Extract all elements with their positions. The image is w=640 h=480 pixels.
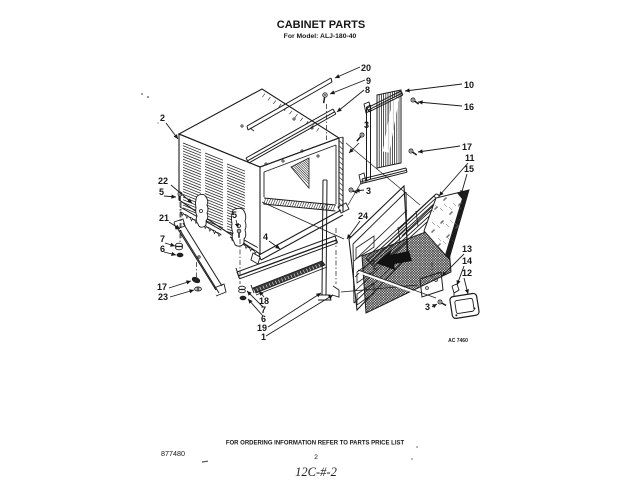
svg-text:15: 15 bbox=[464, 164, 474, 174]
svg-text:13: 13 bbox=[462, 244, 472, 254]
svg-text:2: 2 bbox=[314, 454, 318, 461]
svg-text:17: 17 bbox=[157, 282, 167, 292]
svg-text:5: 5 bbox=[232, 210, 237, 220]
svg-text:12: 12 bbox=[462, 268, 472, 278]
svg-text:2: 2 bbox=[160, 113, 165, 123]
svg-text:AC 7460: AC 7460 bbox=[448, 338, 468, 344]
svg-text:3: 3 bbox=[366, 186, 371, 196]
svg-text:877480: 877480 bbox=[161, 449, 185, 458]
svg-text:10: 10 bbox=[464, 80, 474, 90]
svg-text:CABINET PARTS: CABINET PARTS bbox=[277, 19, 365, 31]
svg-text:3: 3 bbox=[364, 120, 369, 130]
svg-text:5: 5 bbox=[159, 187, 164, 197]
svg-text:14: 14 bbox=[462, 256, 472, 266]
svg-text:8: 8 bbox=[365, 85, 370, 95]
svg-text:17: 17 bbox=[462, 142, 472, 152]
svg-text:16: 16 bbox=[464, 102, 474, 112]
svg-text:1: 1 bbox=[261, 332, 266, 342]
svg-text:21: 21 bbox=[159, 213, 169, 223]
svg-text:For Model: ALJ-180-40: For Model: ALJ-180-40 bbox=[284, 33, 357, 40]
svg-text:FOR ORDERING INFORMATION REFER: FOR ORDERING INFORMATION REFER TO PARTS … bbox=[226, 441, 405, 447]
svg-text:12C-#-2: 12C-#-2 bbox=[295, 465, 337, 479]
svg-text:24: 24 bbox=[358, 211, 368, 221]
svg-text:22: 22 bbox=[158, 176, 168, 186]
svg-text:20: 20 bbox=[361, 63, 371, 73]
svg-text:3: 3 bbox=[425, 302, 430, 312]
svg-text:4: 4 bbox=[263, 232, 268, 242]
svg-text:7: 7 bbox=[160, 234, 165, 244]
svg-text:23: 23 bbox=[158, 292, 168, 302]
svg-text:11: 11 bbox=[465, 153, 475, 163]
